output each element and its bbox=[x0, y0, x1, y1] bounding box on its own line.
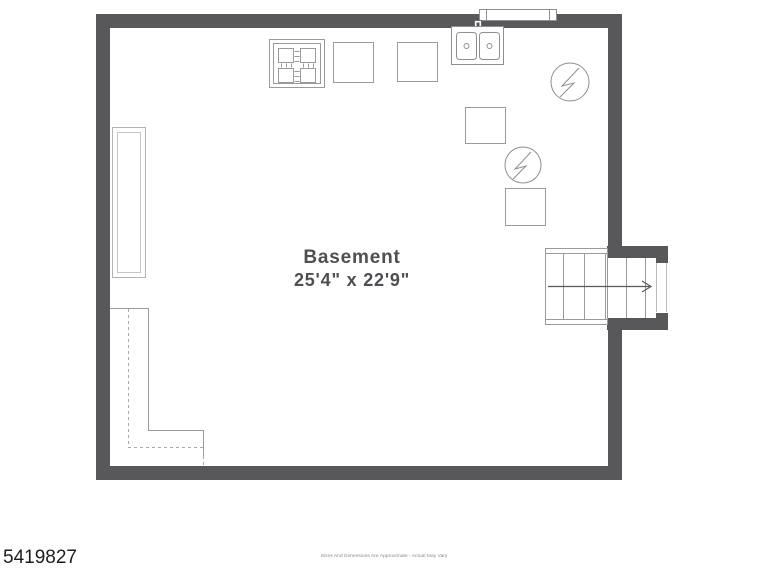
shelving-unit-icon bbox=[113, 128, 146, 278]
range-icon bbox=[270, 40, 325, 88]
water-heater-icon bbox=[505, 147, 541, 183]
room-dimensions: 25'4" x 22'9" bbox=[252, 270, 452, 291]
window-icon bbox=[480, 10, 557, 21]
double-sink-icon bbox=[452, 21, 504, 65]
water-heater-icon bbox=[551, 63, 589, 101]
disclaimer-text: Sizes And Dimensions Are Approximate - A… bbox=[211, 553, 557, 558]
room-name: Basement bbox=[252, 247, 452, 269]
crawlspace-dashed-outline bbox=[110, 309, 204, 467]
appliance-square-icon bbox=[334, 43, 546, 226]
room-label-block: Basement 25'4" x 22'9" bbox=[252, 247, 452, 291]
listing-id: 5419827 bbox=[3, 547, 77, 569]
